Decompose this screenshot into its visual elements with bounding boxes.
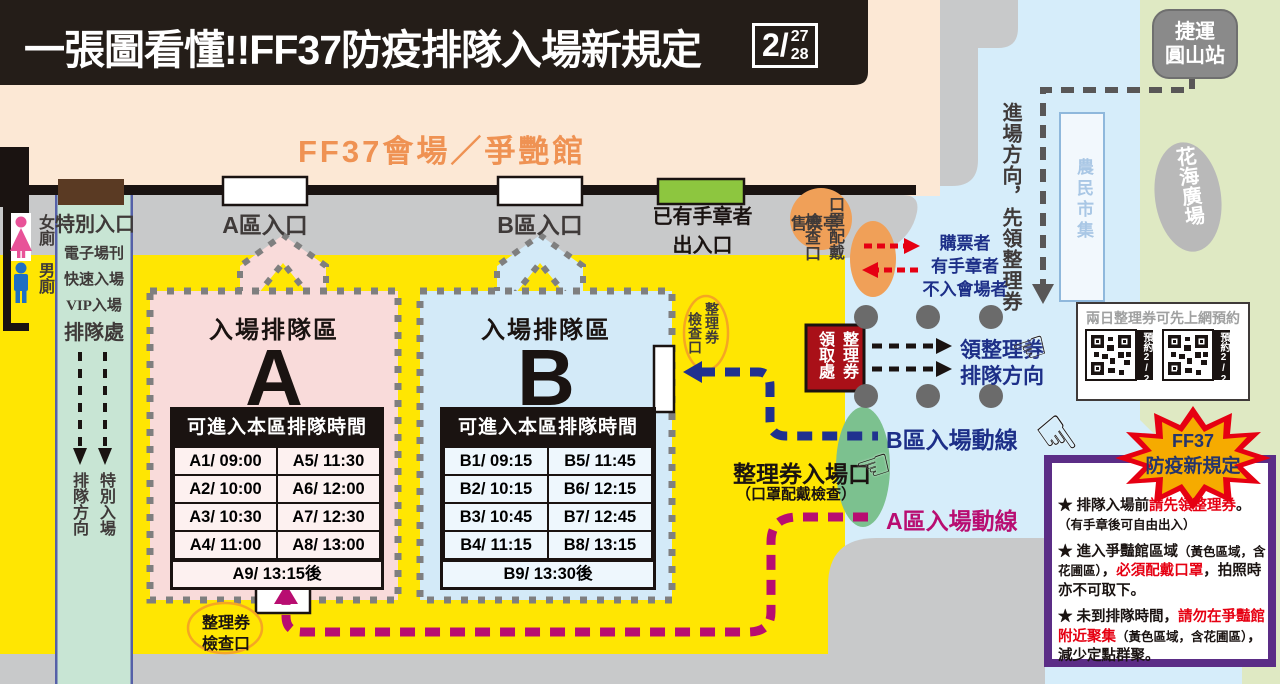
queue-time-cell: B4/ 11:15 (444, 531, 548, 559)
queue-time-row: B3/ 10:45B7/ 12:45 (444, 503, 652, 531)
queue-time-cell: B5/ 11:45 (548, 447, 652, 475)
queue-time-cell: B8/ 13:15 (548, 531, 652, 559)
stamped-entrance-label: 已有手章者 出入口 (645, 200, 760, 258)
route-a-label: A區入場動線 (886, 502, 1018, 536)
starburst-line2: 防疫新規定 (1133, 451, 1253, 478)
queue-time-row: A1/ 09:00A5/ 11:30 (174, 447, 380, 475)
rule-item: ★ 進入爭豔館區域（黃色區域，含花圃區），必須配戴口罩，拍照時亦不可取下。 (1058, 543, 1266, 601)
queue-a-table: 可進入本區排隊時間 A1/ 09:00A5/ 11:30A2/ 10:00A6/… (170, 407, 384, 590)
infographic-canvas: 一張圖看懂!!FF37防疫排隊入場新規定 2/ 27 28 FF37會場／爭艷館… (0, 0, 1280, 684)
south-building (828, 538, 1045, 684)
venue-label: FF37會場／爭艷館 (298, 126, 586, 171)
qr-label-day1: 預約2/27 (1139, 332, 1154, 379)
date-month: 2/ (762, 27, 789, 64)
starburst-line1: FF37 (1133, 431, 1253, 452)
rules-list: ★ 排隊入場前請先領整理券。（有手章後可自由出入） ★ 進入爭豔館區域（黃色區域… (1058, 497, 1266, 673)
rule-item: ★ 未到排隊時間，請勿在爭豔館附近聚集（黃色區域，含花圃區），減少定點群聚。 (1058, 608, 1266, 666)
queue-time-cell: B6/ 12:15 (548, 475, 652, 503)
date-day1: 27 (791, 28, 809, 46)
queue-time-cell: A7/ 12:30 (277, 503, 380, 531)
queue-time-row: B4/ 11:15B8/ 13:15 (444, 531, 652, 559)
mask-check-col-right: 口罩配戴 (822, 196, 846, 288)
queue-time-cell: A5/ 11:30 (277, 447, 380, 475)
entrance-a-label: A區入口 (210, 206, 320, 240)
queue-time-row: A4/ 11:00A8/ 13:00 (174, 531, 380, 559)
special-entrance-line2: 快速入場 (55, 268, 133, 289)
voucher-check-b-left: 檢查口 (685, 312, 705, 364)
queue-time-row: B2/ 10:15B6/ 12:15 (444, 475, 652, 503)
special-entrance-line3: VIP入場 (55, 294, 133, 315)
entrance-b-door (498, 177, 582, 205)
queue-time-row: A3/ 10:30A7/ 12:30 (174, 503, 380, 531)
queue-time-cell: A3/ 10:30 (174, 503, 277, 531)
date-day2: 28 (791, 46, 809, 64)
visitor-type-3: 不入會場者 (915, 275, 1015, 300)
farmers-market-label: 農民市集 (1071, 158, 1096, 258)
voucher-check-a-line2: 檢查口 (188, 630, 264, 654)
queue-time-cell: A4/ 11:00 (174, 531, 277, 559)
special-entrance-label: 特別入口 (55, 208, 133, 237)
queue-time-cell: A8/ 13:00 (277, 531, 380, 559)
voucher-check-b-right: 整理券 (702, 302, 722, 366)
qr-code-day2 (1163, 330, 1213, 380)
voucher-pickup-right: 整理券 (836, 331, 860, 387)
mask-check-ellipse (850, 221, 896, 297)
toilet-female-label: 女廁 (32, 214, 56, 258)
queue-b-table-header: 可進入本區排隊時間 (443, 410, 653, 446)
venue-wall (28, 185, 916, 195)
page-title: 一張圖看懂!!FF37防疫排隊入場新規定 (24, 16, 701, 76)
queue-time-cell: B7/ 12:45 (548, 503, 652, 531)
queue-time-row: B1/ 09:15B5/ 11:45 (444, 447, 652, 475)
voucher-gate-sub: （口罩配戴檢查） (736, 483, 856, 504)
visitor-type-2: 有手章者 (915, 252, 1015, 277)
queue-b-table: 可進入本區排隊時間 B1/ 09:15B5/ 11:45B2/ 10:15B6/… (440, 407, 656, 590)
qr-panel-title: 兩日整理券可先上網預約 (1080, 308, 1246, 328)
queue-time-cell: B2/ 10:15 (444, 475, 548, 503)
special-entrance-door (58, 179, 124, 205)
qr-label-day2: 預約2/28 (1216, 332, 1231, 379)
special-entrance-line1: 電子場刊 (55, 242, 133, 263)
route-b-label: B區入場動線 (886, 421, 1018, 455)
queue-time-cell: A6/ 12:00 (277, 475, 380, 503)
queue-time-cell: A2/ 10:00 (174, 475, 277, 503)
left-wall (0, 147, 29, 207)
queue-time-cell: B3/ 10:45 (444, 503, 548, 531)
date-badge: 2/ 27 28 (752, 23, 818, 68)
special-flow-right: 特別入場 (93, 472, 117, 568)
toilet-male-label: 男廁 (32, 262, 56, 306)
mask-check-col-left: 檢查口 (798, 213, 822, 283)
visitor-type-1: 購票者 (915, 229, 1015, 254)
entrance-b-label: B區入口 (485, 206, 595, 240)
entrance-a-door (223, 177, 307, 205)
special-flow-left: 排隊方向 (66, 472, 90, 568)
qr-code-day1 (1086, 330, 1136, 380)
queue-time-row: A2/ 10:00A6/ 12:00 (174, 475, 380, 503)
voucher-pickup-left: 領取處 (812, 331, 836, 387)
queue-time-cell: B1/ 09:15 (444, 447, 548, 475)
walkway (0, 195, 917, 258)
mrt-station-label: 捷運 圓山站 (1156, 20, 1234, 68)
queue-a-table-header: 可進入本區排隊時間 (173, 410, 381, 446)
queue-time-cell: A1/ 09:00 (174, 447, 277, 475)
queue-b-lastrow: B9/ 13:30後 (443, 560, 653, 587)
rule-item: ★ 排隊入場前請先領整理券。（有手章後可自由出入） (1058, 497, 1266, 536)
queue-a-lastrow: A9/ 13:15後 (173, 560, 381, 587)
special-entrance-line4: 排隊處 (55, 316, 133, 345)
